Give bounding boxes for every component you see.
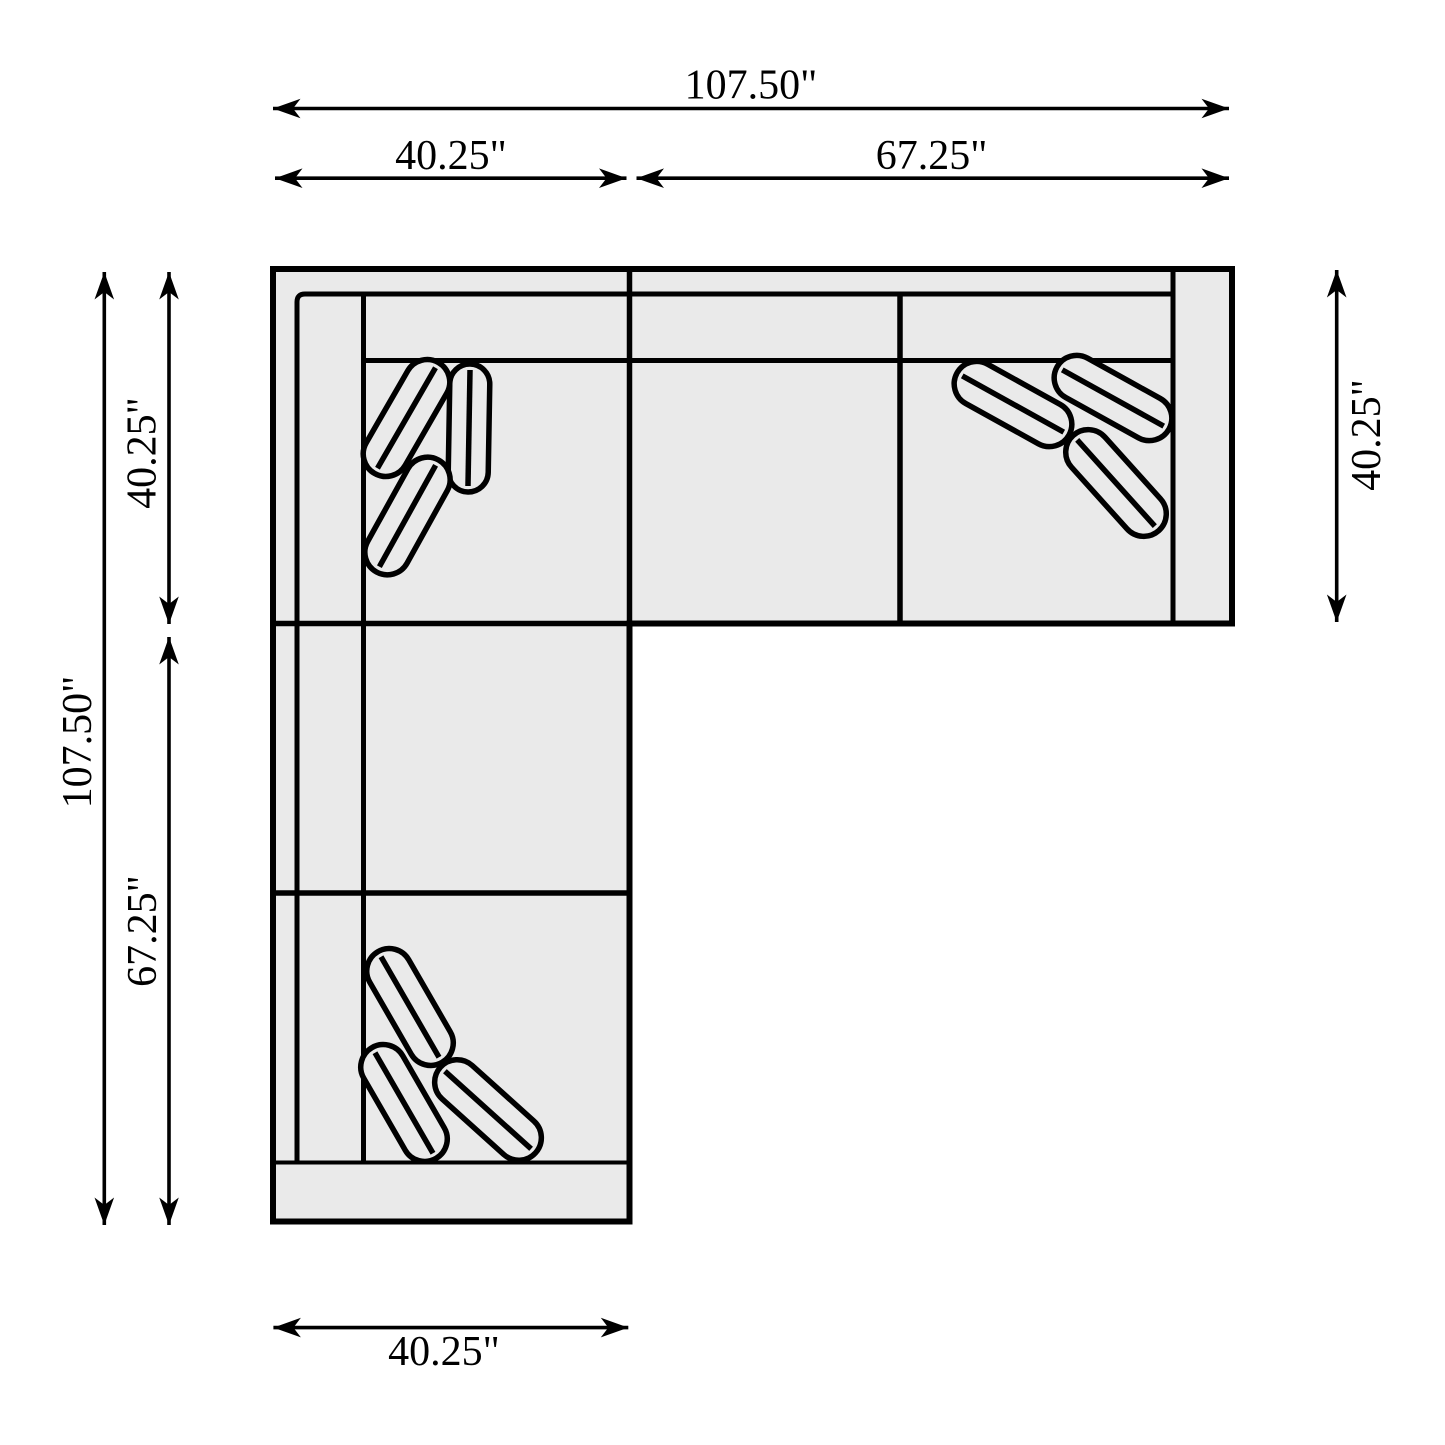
svg-text:107.50": 107.50" [685,63,818,109]
svg-text:40.25": 40.25" [388,1329,500,1375]
svg-text:67.25": 67.25" [120,875,166,987]
svg-text:107.50": 107.50" [55,676,101,809]
svg-text:40.25": 40.25" [395,133,507,179]
svg-text:40.25": 40.25" [1344,379,1390,491]
svg-text:40.25": 40.25" [120,397,166,509]
svg-text:67.25": 67.25" [876,133,988,179]
